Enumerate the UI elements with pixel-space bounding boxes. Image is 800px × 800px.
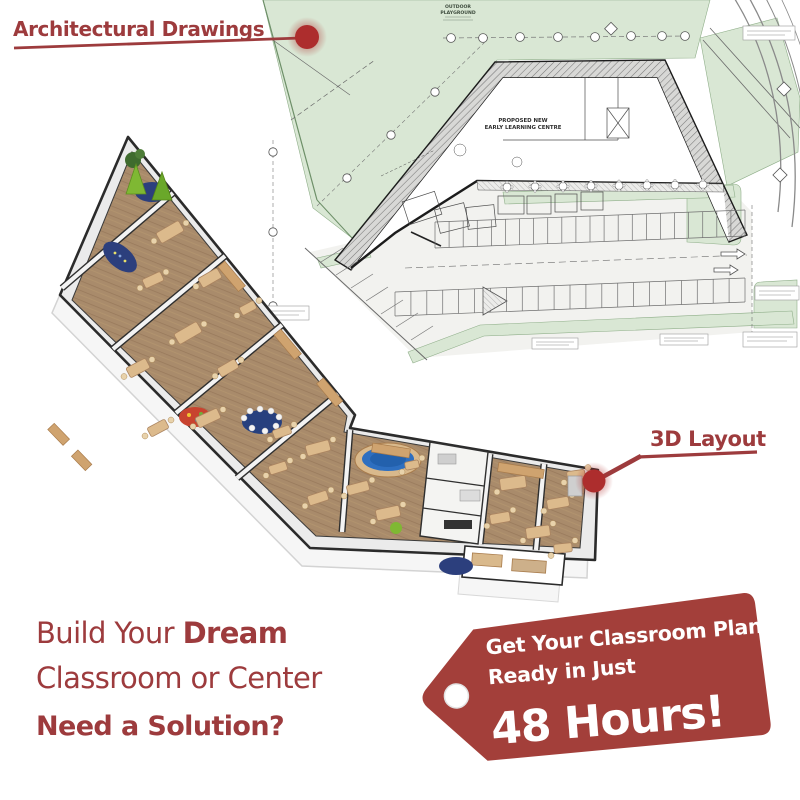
headline-line2: Classroom or Center bbox=[36, 656, 322, 701]
layout3d-underline bbox=[638, 452, 757, 457]
playground-caption-line2: PLAYGROUND bbox=[440, 10, 476, 16]
headline-line1-bold: Dream bbox=[183, 616, 288, 650]
blue-rug bbox=[439, 557, 473, 575]
playground-caption-line1: OUTDOOR bbox=[445, 4, 471, 10]
green-ball bbox=[390, 522, 402, 534]
headline-line1: Build Your Dream bbox=[36, 611, 322, 656]
floorplan-3d bbox=[20, 120, 620, 630]
bathroom-block bbox=[420, 442, 488, 544]
headline: Build Your Dream Classroom or Center Nee… bbox=[36, 611, 322, 749]
headline-line1-regular: Build Your bbox=[36, 616, 174, 650]
3d-layout-label: 3D Layout bbox=[650, 427, 766, 451]
promo-graphic: PROPOSED NEW EARLY LEARNING CENTRE OUTDO… bbox=[0, 0, 800, 800]
headline-line3: Need a Solution? bbox=[36, 704, 322, 749]
tag-cta[interactable]: Get Your Classroom Plan Ready in Just 48… bbox=[410, 588, 782, 778]
architectural-drawings-label: Architectural Drawings bbox=[13, 17, 264, 41]
